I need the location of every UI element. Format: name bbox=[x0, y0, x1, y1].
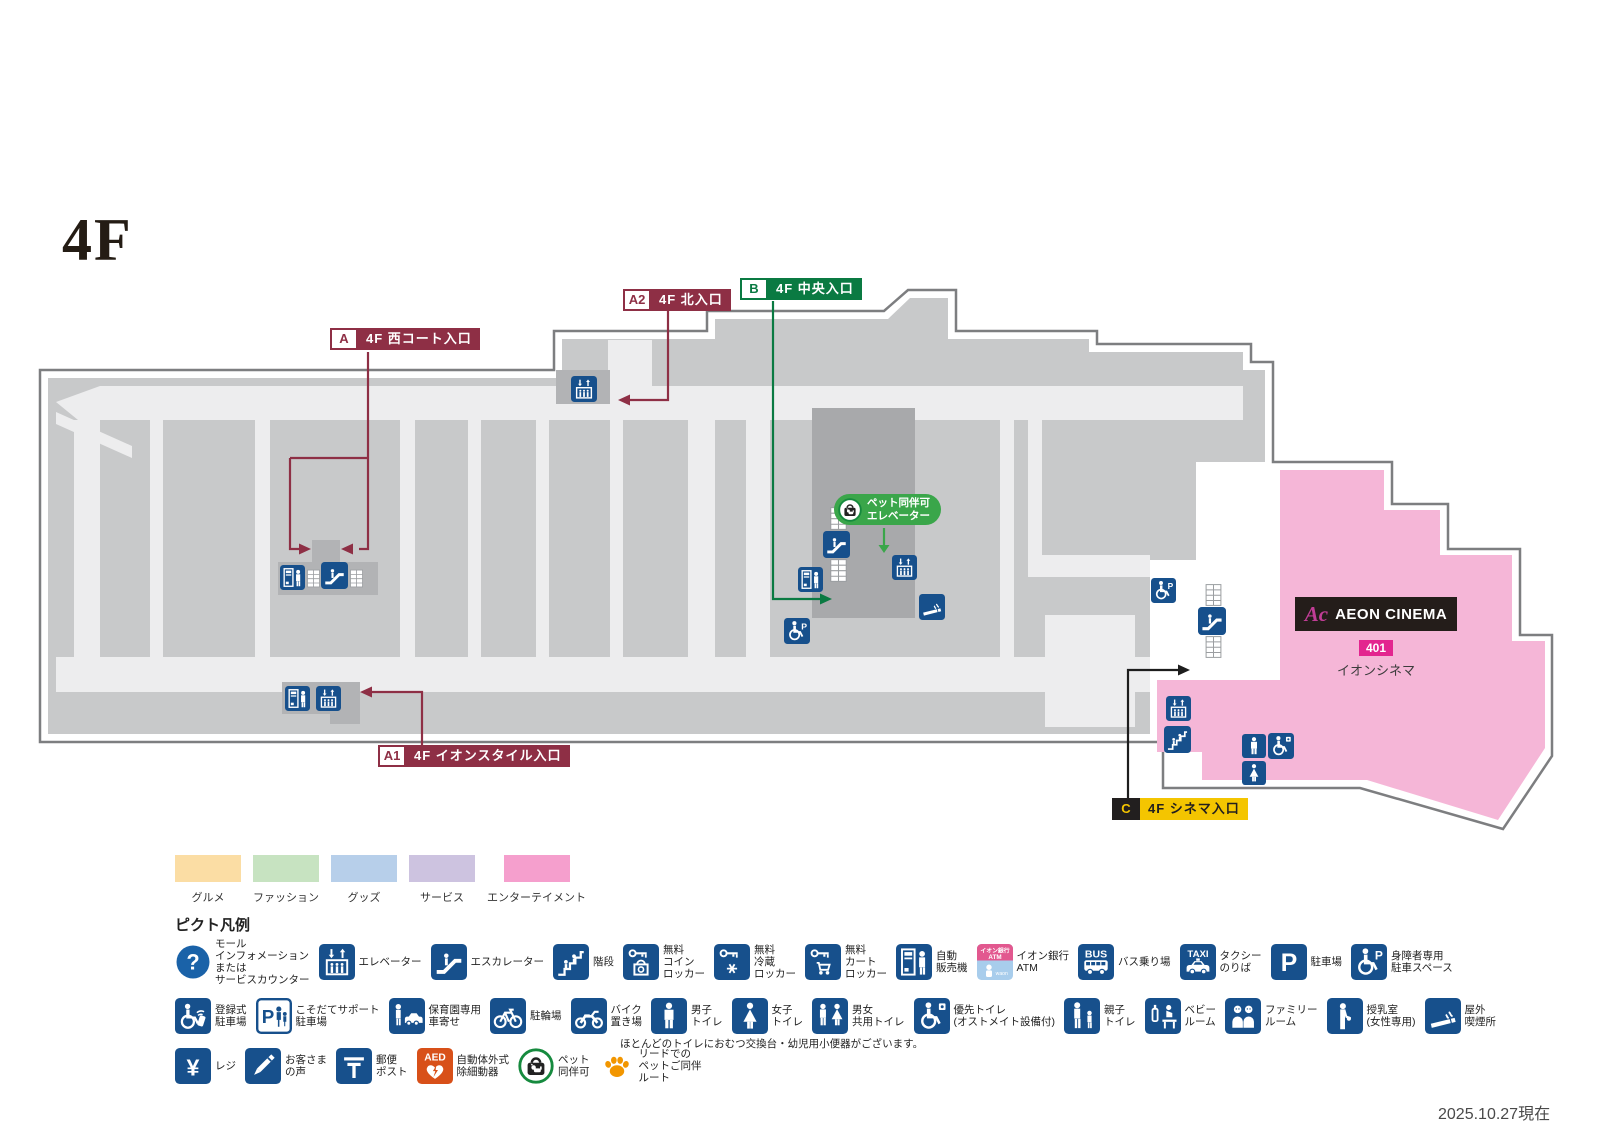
entrance-label-c: C 4F シネマ入口 bbox=[1112, 798, 1248, 820]
picto-legend-item: 階段 bbox=[553, 944, 614, 980]
entrance-text-a1: 4F イオンスタイル入口 bbox=[406, 745, 570, 767]
entrance-label-a2: A2 4F 北入口 bbox=[623, 289, 731, 311]
pet-allowed-icon bbox=[518, 1048, 554, 1084]
category-legend-item: エンターテイメント bbox=[487, 855, 586, 905]
aeon-cinema-logo-text: AEON CINEMA bbox=[1335, 606, 1447, 623]
nursing-room-icon bbox=[1327, 998, 1363, 1034]
picto-legend-item: タクシー のりば bbox=[1180, 944, 1262, 980]
aeon-cinema-logo-mark: Ac bbox=[1305, 602, 1328, 627]
picto-legend-item: 男子 トイレ bbox=[651, 998, 723, 1034]
entrance-id-a2: A2 bbox=[623, 289, 651, 311]
post-box-icon bbox=[336, 1048, 372, 1084]
picto-legend-label: 無料 冷蔵 ロッカー bbox=[754, 944, 796, 980]
picto-legend-label: 屋外 喫煙所 bbox=[1465, 1004, 1497, 1028]
cart-locker-icon bbox=[805, 944, 841, 980]
picto-legend-item: 授乳室 (女性専用) bbox=[1327, 998, 1416, 1034]
picto-legend-item: バイク 置き場 bbox=[571, 998, 643, 1034]
registered-parking-icon bbox=[175, 998, 211, 1034]
category-legend: グルメファッショングッズサービスエンターテイメント bbox=[175, 855, 586, 905]
accessible-parking-icon bbox=[1351, 944, 1387, 980]
picto-legend-label: 自動体外式 除細動器 bbox=[457, 1054, 510, 1078]
aeon-style-tab bbox=[330, 714, 360, 724]
picto-legend-item: 親子 トイレ bbox=[1064, 998, 1136, 1034]
stair-hatch bbox=[831, 560, 846, 582]
picto-legend-row-3: レジお客さま の声郵便 ポスト自動体外式 除細動器ペット 同伴可リードでの ペッ… bbox=[175, 1048, 702, 1084]
entrance-text-a2: 4F 北入口 bbox=[651, 289, 731, 311]
picto-legend-item: ペット 同伴可 bbox=[518, 1048, 590, 1084]
category-label: エンターテイメント bbox=[487, 889, 586, 905]
priority-toilet-icon bbox=[914, 998, 950, 1034]
elevator-icon bbox=[319, 944, 355, 980]
picto-legend-label: こそだてサポート 駐車場 bbox=[296, 1004, 380, 1028]
picto-legend-row-1: モール インフォメーション または サービスカウンターエレベーターエスカレーター… bbox=[175, 938, 1453, 986]
picto-legend-title: ピクト凡例 bbox=[175, 914, 250, 935]
entrance-label-a1: A1 4F イオンスタイル入口 bbox=[378, 745, 570, 767]
nursery-pickup-icon bbox=[389, 998, 425, 1034]
entrance-text-a: 4F 西コート入口 bbox=[358, 328, 480, 350]
accessible-parking-icon bbox=[784, 618, 810, 644]
picto-legend-item: レジ bbox=[175, 1048, 236, 1084]
vending-machine-icon bbox=[285, 686, 310, 711]
picto-legend-item: 無料 冷蔵 ロッカー bbox=[714, 944, 796, 980]
womens-toilet-icon bbox=[1242, 761, 1266, 785]
picto-legend-label: 登録式 駐車場 bbox=[215, 1004, 247, 1028]
picto-legend-label: 郵便 ポスト bbox=[376, 1054, 408, 1078]
picto-legend-item: リードでの ペットご同伴 ルート bbox=[599, 1048, 702, 1084]
picto-legend-item: エレベーター bbox=[319, 944, 422, 980]
picto-legend-item: 無料 コイン ロッカー bbox=[623, 944, 705, 980]
mens-toilet-icon bbox=[651, 998, 687, 1034]
entrance-label-b: B 4F 中央入口 bbox=[740, 278, 862, 300]
picto-legend-label: 授乳室 (女性専用) bbox=[1367, 1004, 1416, 1028]
aeon-cinema-sign: Ac AEON CINEMA bbox=[1295, 597, 1457, 631]
entrance-text-c: 4F シネマ入口 bbox=[1140, 798, 1248, 820]
picto-legend-label: レジ bbox=[215, 1060, 236, 1072]
picto-legend-item: 登録式 駐車場 bbox=[175, 998, 247, 1034]
picto-legend-label: タクシー のりば bbox=[1220, 950, 1262, 974]
aeon-bank-atm-icon bbox=[977, 944, 1013, 980]
aed-icon bbox=[417, 1048, 453, 1084]
mens-toilet-icon bbox=[1242, 734, 1266, 758]
category-swatch bbox=[409, 855, 475, 882]
picto-legend-item: 保育園専用 車寄せ bbox=[389, 998, 482, 1034]
entrance-id-b: B bbox=[740, 278, 768, 300]
parking-icon bbox=[1271, 944, 1307, 980]
pet-allowed-icon bbox=[838, 498, 862, 522]
vending-machine-icon bbox=[280, 565, 305, 590]
picto-legend-item: ベビー ルーム bbox=[1145, 998, 1217, 1034]
picto-legend-item: モール インフォメーション または サービスカウンター bbox=[175, 938, 310, 986]
pet-badge-text: ペット同伴可 エレベーター bbox=[867, 497, 930, 522]
cold-locker-icon bbox=[714, 944, 750, 980]
escalator-icon bbox=[823, 531, 850, 558]
picto-legend-label: ファミリー ルーム bbox=[1265, 1004, 1318, 1028]
category-swatch bbox=[175, 855, 241, 882]
womens-toilet-icon bbox=[732, 998, 768, 1034]
motorcycle-parking-icon bbox=[571, 998, 607, 1034]
baby-room-icon bbox=[1145, 998, 1181, 1034]
kosodate-support-parking-icon bbox=[256, 998, 292, 1034]
picto-legend-label: ペット 同伴可 bbox=[558, 1054, 590, 1078]
entrance-label-a: A 4F 西コート入口 bbox=[330, 328, 480, 350]
category-swatch bbox=[504, 855, 570, 882]
elevator-icon bbox=[316, 686, 341, 711]
picto-legend-item: 駐車場 bbox=[1271, 944, 1343, 980]
bicycle-parking-icon bbox=[490, 998, 526, 1034]
pet-elevator-badge: ペット同伴可 エレベーター bbox=[834, 494, 941, 525]
category-legend-item: ファッション bbox=[253, 855, 319, 905]
pet-badge-line1: ペット同伴可 bbox=[867, 497, 930, 510]
all-gender-toilet-icon bbox=[812, 998, 848, 1034]
picto-legend-label: バス乗り場 bbox=[1118, 956, 1171, 968]
picto-legend-item: 駐輪場 bbox=[490, 998, 562, 1034]
category-label: グッズ bbox=[348, 889, 381, 905]
escalator-icon bbox=[321, 562, 348, 589]
picto-legend-label: 駐車場 bbox=[1311, 956, 1343, 968]
escalator-icon bbox=[431, 944, 467, 980]
picto-legend-item: バス乗り場 bbox=[1078, 944, 1171, 980]
picto-legend-item: 優先トイレ (オストメイト設備付) bbox=[914, 998, 1056, 1034]
picto-legend-item: エスカレーター bbox=[431, 944, 545, 980]
as-of-date: 2025.10.27現在 bbox=[1438, 1100, 1550, 1124]
entrance-id-c: C bbox=[1112, 798, 1140, 820]
picto-legend-label: バイク 置き場 bbox=[611, 1004, 643, 1028]
mall-information-icon bbox=[175, 944, 211, 980]
outdoor-smoking-icon bbox=[1425, 998, 1461, 1034]
picto-legend-item: ファミリー ルーム bbox=[1225, 998, 1318, 1034]
west-entrance-tab bbox=[312, 540, 340, 562]
family-room-icon bbox=[1225, 998, 1261, 1034]
cashier-icon bbox=[175, 1048, 211, 1084]
elevator-icon bbox=[571, 376, 597, 402]
category-legend-item: グルメ bbox=[175, 855, 241, 905]
picto-legend-label: 親子 トイレ bbox=[1104, 1004, 1136, 1028]
picto-legend-label: リードでの ペットご同伴 ルート bbox=[639, 1048, 702, 1084]
picto-legend-label: 男子 トイレ bbox=[691, 1004, 723, 1028]
stairs-icon bbox=[1164, 726, 1191, 753]
picto-legend-label: イオン銀行 ATM bbox=[1017, 950, 1070, 974]
category-legend-item: グッズ bbox=[331, 855, 397, 905]
taxi-stand-icon bbox=[1180, 944, 1216, 980]
bus-stop-icon bbox=[1078, 944, 1114, 980]
picto-legend-label: 無料 コイン ロッカー bbox=[663, 944, 705, 980]
stairs-icon bbox=[553, 944, 589, 980]
elevator-icon bbox=[892, 555, 917, 580]
category-swatch bbox=[253, 855, 319, 882]
picto-legend-label: 身障者専用 駐車スペース bbox=[1391, 950, 1453, 974]
cinema-unit-number: 401 bbox=[1359, 640, 1393, 656]
picto-legend-item: 郵便 ポスト bbox=[336, 1048, 408, 1084]
priority-toilet-icon bbox=[1268, 733, 1294, 759]
picto-legend-item: お客さま の声 bbox=[245, 1048, 327, 1084]
category-label: サービス bbox=[420, 889, 464, 905]
picto-legend-label: ベビー ルーム bbox=[1185, 1004, 1217, 1028]
picto-legend-item: 男女 共用トイレ bbox=[812, 998, 905, 1034]
picto-legend-label: 保育園専用 車寄せ bbox=[429, 1004, 482, 1028]
picto-legend-label: 階段 bbox=[593, 956, 614, 968]
picto-legend-item: 自動体外式 除細動器 bbox=[417, 1048, 510, 1084]
category-swatch bbox=[331, 855, 397, 882]
picto-legend-label: 自動 販売機 bbox=[936, 950, 968, 974]
picto-legend-item: 身障者専用 駐車スペース bbox=[1351, 944, 1453, 980]
picto-legend-item: 屋外 喫煙所 bbox=[1425, 998, 1497, 1034]
picto-legend-label: 男女 共用トイレ bbox=[852, 1004, 905, 1028]
stair-hatch bbox=[1206, 637, 1221, 658]
category-legend-item: サービス bbox=[409, 855, 475, 905]
pet-route-icon bbox=[599, 1048, 635, 1084]
picto-legend-label: 女子 トイレ bbox=[772, 1004, 804, 1028]
page-title: 4F bbox=[62, 206, 133, 275]
picto-legend-label: モール インフォメーション または サービスカウンター bbox=[215, 938, 310, 986]
picto-legend-label: 無料 カート ロッカー bbox=[845, 944, 887, 980]
picto-legend-label: 優先トイレ (オストメイト設備付) bbox=[954, 1004, 1056, 1028]
entrance-text-b: 4F 中央入口 bbox=[768, 278, 862, 300]
floor-map-page: { "floor_title": "4F", "as_of": "2025.10… bbox=[0, 0, 1600, 1126]
picto-legend-row-2: 登録式 駐車場こそだてサポート 駐車場保育園専用 車寄せ駐輪場バイク 置き場男子… bbox=[175, 998, 1496, 1034]
picto-legend-item: イオン銀行 ATM bbox=[977, 944, 1070, 980]
outdoor-smoking-icon bbox=[919, 594, 945, 620]
customer-voice-icon bbox=[245, 1048, 281, 1084]
escalator-icon bbox=[1198, 607, 1226, 635]
elevator-icon bbox=[1166, 696, 1191, 721]
picto-legend-item: 無料 カート ロッカー bbox=[805, 944, 887, 980]
pet-badge-line2: エレベーター bbox=[867, 510, 930, 523]
category-label: ファッション bbox=[253, 889, 319, 905]
picto-legend-item: こそだてサポート 駐車場 bbox=[256, 998, 380, 1034]
picto-legend-label: 駐輪場 bbox=[530, 1010, 562, 1022]
vending-machine-icon bbox=[896, 944, 932, 980]
picto-legend-item: 自動 販売機 bbox=[896, 944, 968, 980]
category-label: グルメ bbox=[192, 889, 225, 905]
cinema-label-group: Ac AEON CINEMA 401 イオンシネマ bbox=[1288, 597, 1464, 679]
picto-legend-item: 女子 トイレ bbox=[732, 998, 804, 1034]
parent-child-toilet-icon bbox=[1064, 998, 1100, 1034]
entrance-id-a: A bbox=[330, 328, 358, 350]
accessible-parking-icon bbox=[1151, 578, 1176, 603]
picto-legend-label: エスカレーター bbox=[471, 956, 545, 968]
cinema-unit-name: イオンシネマ bbox=[1337, 660, 1415, 679]
stair-hatch bbox=[1206, 585, 1221, 606]
entrance-id-a1: A1 bbox=[378, 745, 406, 767]
stair-hatch bbox=[350, 570, 362, 587]
vending-machine-icon bbox=[798, 567, 823, 592]
picto-legend-label: エレベーター bbox=[359, 956, 422, 968]
stair-hatch bbox=[307, 570, 319, 587]
picto-legend-label: お客さま の声 bbox=[285, 1054, 327, 1078]
coin-locker-icon bbox=[623, 944, 659, 980]
